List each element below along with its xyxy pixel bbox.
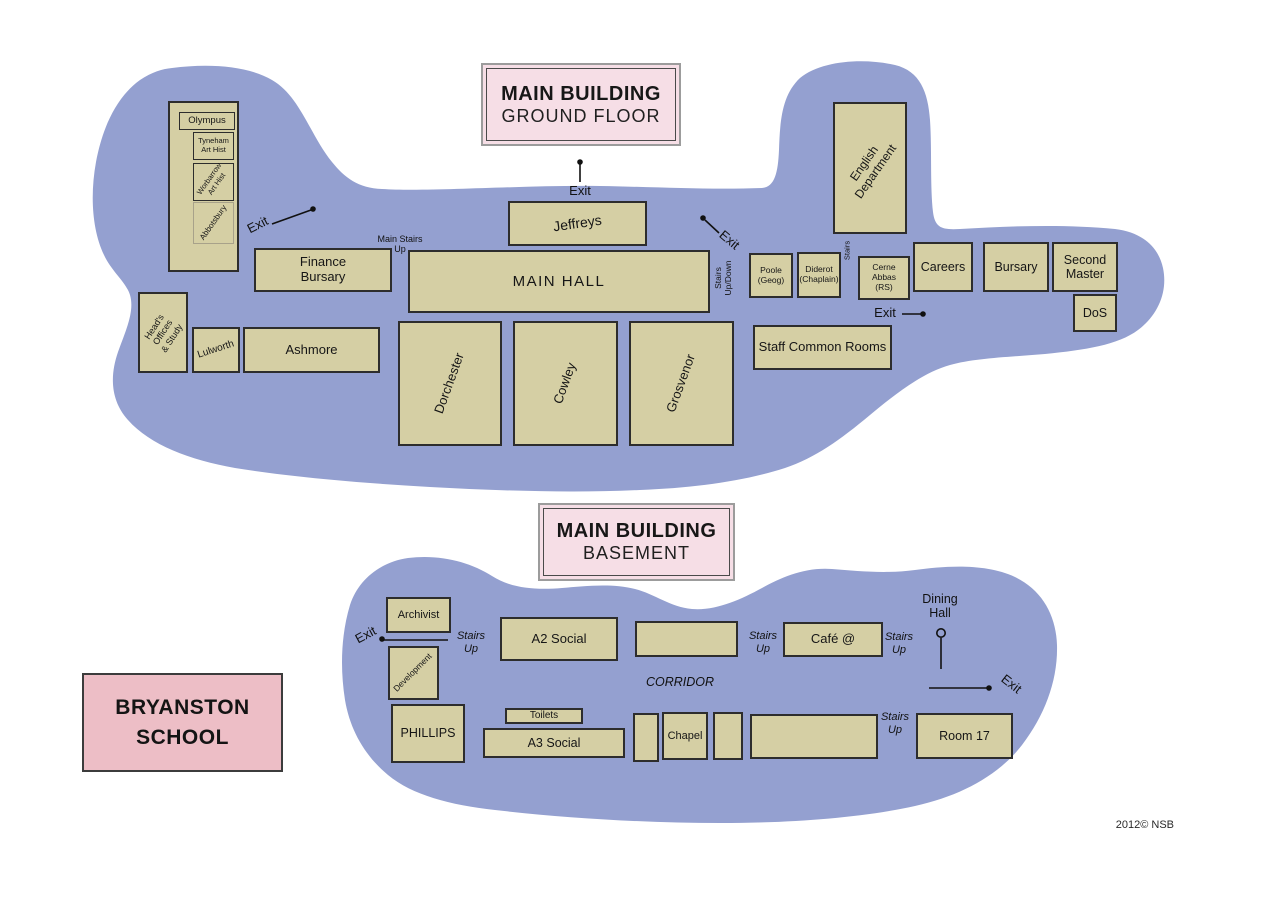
room-english-label: English Department — [841, 134, 900, 201]
label-stairs-cerne: Stairs — [844, 233, 855, 269]
room-abbotsbury-label: Abbotsbury — [198, 204, 229, 242]
room-unnamed-2 — [633, 713, 659, 762]
room-dorchester-label: Dorchester — [432, 351, 468, 416]
room-jeffreys: Jeffreys — [508, 201, 647, 246]
exit-dot-jeffreys — [577, 159, 583, 165]
room-heads-offices-label: Head's Offices & Study — [137, 305, 188, 360]
room-diderot-chaplain: Diderot (Chaplain) — [797, 252, 841, 298]
room-second-master: Second Master — [1052, 242, 1118, 292]
room-tyneham-art-hist: Tyneham Art Hist — [193, 132, 234, 160]
exit-dot-nw — [310, 206, 316, 212]
label-main-stairs-up: Main Stairs Up — [372, 234, 428, 255]
room-toilets: Toilets — [505, 708, 583, 724]
room-worbarrow-label: Worbarrow Art Hist — [196, 162, 231, 202]
floor-plan-canvas: MAIN BUILDING GROUND FLOOR MAIN BUILDING… — [0, 0, 1274, 900]
room-grosvenor-label: Grosvenor — [664, 352, 699, 414]
exit-dot-basement-west — [379, 636, 385, 642]
room-ashmore: Ashmore — [243, 327, 380, 373]
room-grosvenor: Grosvenor — [629, 321, 734, 446]
room-phillips: PHILLIPS — [391, 704, 465, 763]
room-heads-offices-study: Head's Offices & Study — [138, 292, 188, 373]
room-bursary: Bursary — [983, 242, 1049, 292]
room-art-block: Olympus Tyneham Art Hist Worbarrow Art H… — [168, 101, 239, 272]
room-unnamed-4 — [750, 714, 878, 759]
room-a3-social: A3 Social — [483, 728, 625, 758]
title-basement-line2: BASEMENT — [583, 543, 690, 564]
room-a2-social: A2 Social — [500, 617, 618, 661]
label-stairs-up-1: Stairs Up — [448, 630, 494, 655]
room-olympus: Olympus — [179, 112, 235, 130]
room-dorchester: Dorchester — [398, 321, 502, 446]
room-worbarrow-art-hist: Worbarrow Art Hist — [193, 163, 234, 201]
room-abbotsbury: Abbotsbury — [193, 202, 234, 244]
room-unnamed-3 — [713, 712, 743, 760]
exit-dot-east — [920, 311, 926, 317]
room-main-hall: MAIN HALL — [408, 250, 710, 313]
room-cowley-label: Cowley — [551, 361, 580, 406]
room-archivist: Archivist — [386, 597, 451, 633]
room-dos: DoS — [1073, 294, 1117, 332]
title-basement: MAIN BUILDING BASEMENT — [538, 503, 735, 581]
room-room-17: Room 17 — [916, 713, 1013, 759]
title-ground-floor: MAIN BUILDING GROUND FLOOR — [481, 63, 681, 146]
room-lulworth: Lulworth — [192, 327, 240, 373]
room-development: Development — [388, 646, 439, 700]
room-staff-common-rooms: Staff Common Rooms — [753, 325, 892, 370]
room-cerne-abbas-rs: Cerne Abbas (RS) — [858, 256, 910, 300]
label-dining-hall: Dining Hall — [910, 592, 970, 621]
title-basement-line1: MAIN BUILDING — [557, 520, 717, 543]
label-corridor: CORRIDOR — [640, 675, 720, 689]
school-title: BRYANSTON SCHOOL — [82, 673, 283, 772]
label-stairs-up-down: Stairs Up/Down — [714, 246, 740, 310]
label-stairs-up-3: Stairs Up — [876, 631, 922, 656]
room-careers: Careers — [913, 242, 973, 292]
room-lulworth-label: Lulworth — [196, 339, 236, 362]
room-development-label: Development — [392, 652, 434, 694]
label-stairs-up-4: Stairs Up — [872, 711, 918, 736]
room-cafe: Café @ — [783, 622, 883, 657]
room-cowley: Cowley — [513, 321, 618, 446]
room-unnamed-1 — [635, 621, 738, 657]
room-poole-geog: Poole (Geog) — [749, 253, 793, 298]
label-stairs-up-2: Stairs Up — [740, 630, 786, 655]
label-exit-jeffreys: Exit — [563, 184, 597, 199]
exit-dot-poole — [700, 215, 706, 221]
label-exit-east: Exit — [866, 306, 904, 321]
title-ground-line2: GROUND FLOOR — [501, 106, 660, 127]
title-ground-line1: MAIN BUILDING — [501, 83, 661, 106]
room-chapel: Chapel — [662, 712, 708, 760]
room-jeffreys-label: Jeffreys — [552, 212, 603, 235]
credit-text: 2012© NSB — [1098, 819, 1174, 831]
title-basement-inner: MAIN BUILDING BASEMENT — [543, 508, 730, 576]
exit-dot-basement-east — [986, 685, 992, 691]
room-english-department: English Department — [833, 102, 907, 234]
title-ground-floor-inner: MAIN BUILDING GROUND FLOOR — [486, 68, 676, 141]
